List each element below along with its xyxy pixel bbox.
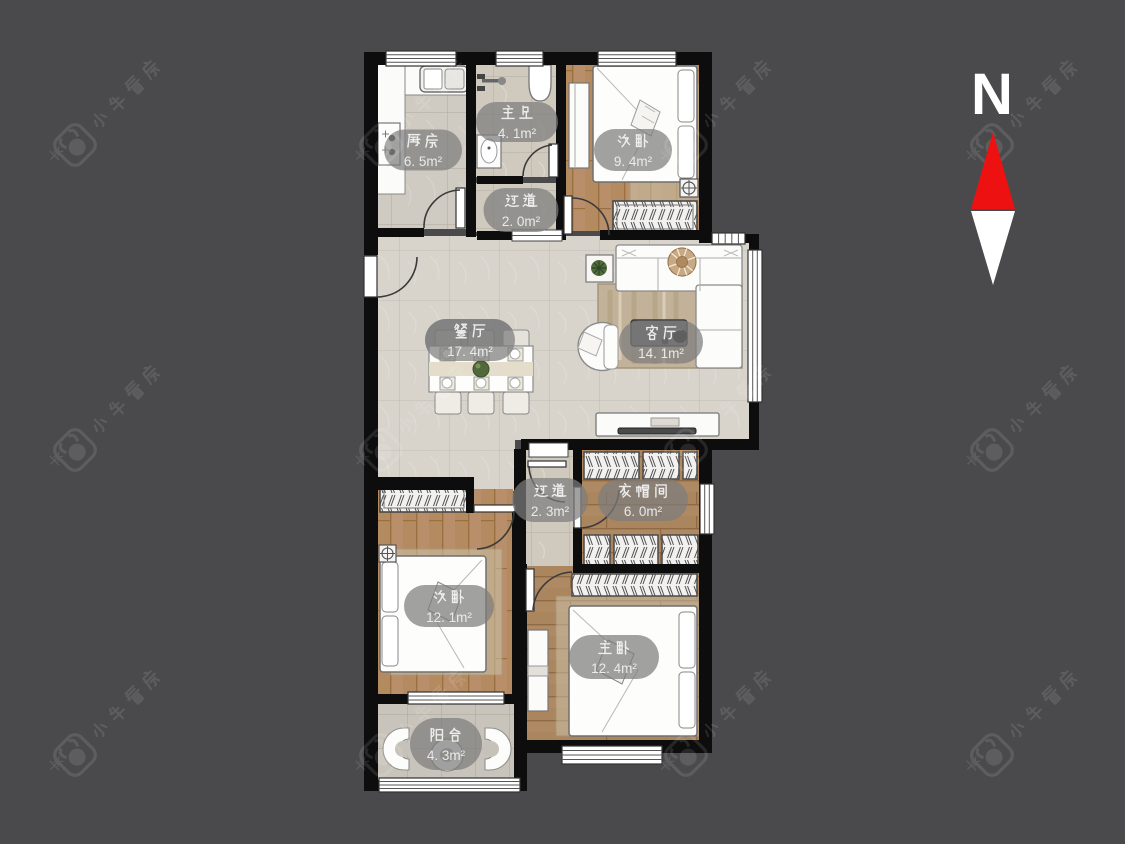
svg-text:4. 3m²: 4. 3m² <box>427 748 466 763</box>
svg-text:12. 1m²: 12. 1m² <box>426 610 472 625</box>
svg-text:12. 4m²: 12. 4m² <box>591 661 637 676</box>
svg-text:9. 4m²: 9. 4m² <box>614 154 653 169</box>
svg-text:2. 0m²: 2. 0m² <box>502 214 541 229</box>
svg-text:6. 0m²: 6. 0m² <box>624 504 663 519</box>
svg-text:N: N <box>971 62 1013 127</box>
svg-text:6. 5m²: 6. 5m² <box>404 154 443 169</box>
svg-text:17. 4m²: 17. 4m² <box>447 344 493 359</box>
svg-text:2. 3m²: 2. 3m² <box>531 504 570 519</box>
svg-text:4. 1m²: 4. 1m² <box>498 126 537 141</box>
svg-text:14. 1m²: 14. 1m² <box>638 346 684 361</box>
